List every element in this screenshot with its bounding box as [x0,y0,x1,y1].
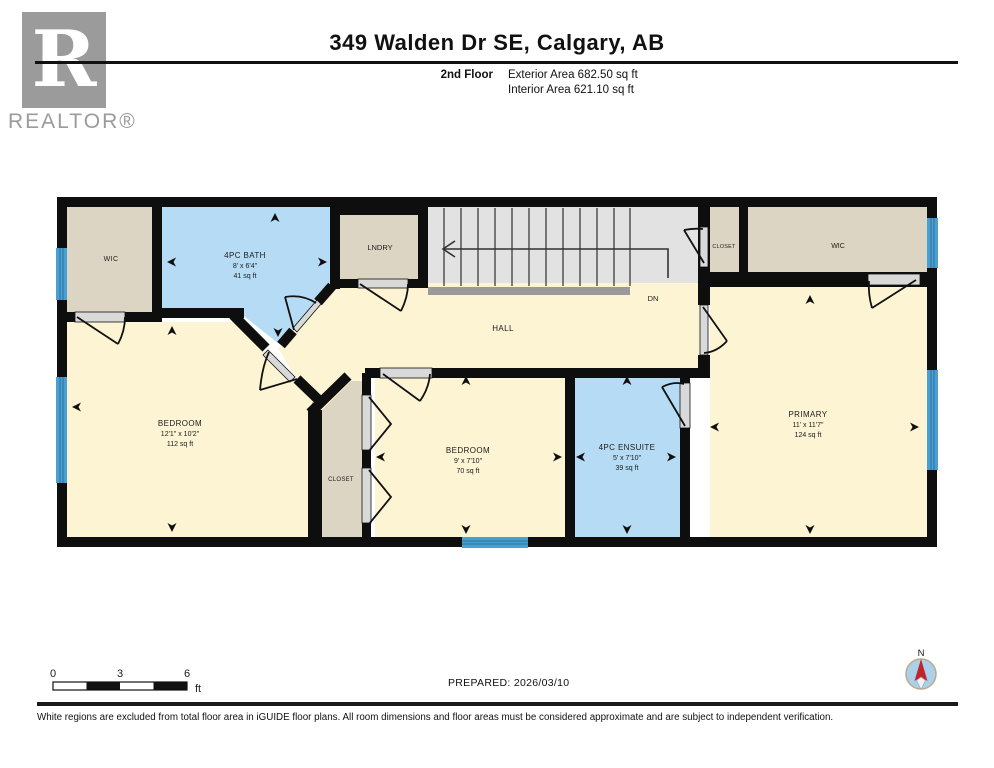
disclaimer-text: White regions are excluded from total fl… [37,712,967,723]
scale-tick-3: 3 [117,668,123,680]
window-wic-top-right [927,218,938,268]
label-primary-area: 124 sq ft [795,432,822,439]
label-closet-top-right: CLOSET [712,244,736,250]
label-bath-area: 41 sq ft [234,273,257,280]
label-primary-dims: 11' x 11'7" [793,422,824,429]
scale-tick-0: 0 [50,668,56,680]
label-wic-top-right: WIC [831,243,845,250]
scale-unit: ft [195,683,201,695]
stairs-area [428,207,700,287]
label-bedroom-left-name: BEDROOM [158,419,202,428]
room-closet-top-right [710,207,739,272]
label-bedroom-left-dims: 12'1" x 10'2" [161,431,200,438]
scale-bar: 0 3 6 ft [50,668,201,695]
label-bedroom-mid-area: 70 sq ft [457,468,480,475]
label-ensuite-area: 39 sq ft [616,465,639,472]
stair-edge-strip [428,287,630,295]
compass-north-label: N [918,648,925,659]
label-hall: HALL [492,324,514,333]
label-bath-name: 4PC BATH [224,251,266,260]
floor-plan: WIC 4PC BATH 8' x 6'4" 41 sq ft LNDRY CL… [0,0,994,768]
label-stairs-dn: DN [648,294,659,303]
window-wic-top-left [56,248,67,300]
label-ensuite-dims: 5' x 7'10" [613,455,642,462]
room-wic-top-right [748,207,927,272]
label-bath-dims: 8' x 6'4" [233,263,258,270]
label-primary-name: PRIMARY [788,410,827,419]
label-bedroom-left-area: 112 sq ft [167,441,193,448]
label-wic-top-left: WIC [104,256,119,263]
footer-divider [37,702,958,706]
window-primary [927,370,938,470]
prepared-date: PREPARED: 2026/03/10 [448,677,569,689]
label-ensuite-name: 4PC ENSUITE [599,443,656,452]
window-bedroom-left [56,377,67,483]
label-lndry: LNDRY [367,243,392,252]
label-bedroom-mid-dims: 9' x 7'10" [454,458,483,465]
scale-tick-6: 6 [184,668,190,680]
label-closet-mid: CLOSET [328,477,354,483]
label-bedroom-mid-name: BEDROOM [446,446,490,455]
window-bedroom-mid [462,537,528,548]
compass-icon: N [906,648,936,690]
